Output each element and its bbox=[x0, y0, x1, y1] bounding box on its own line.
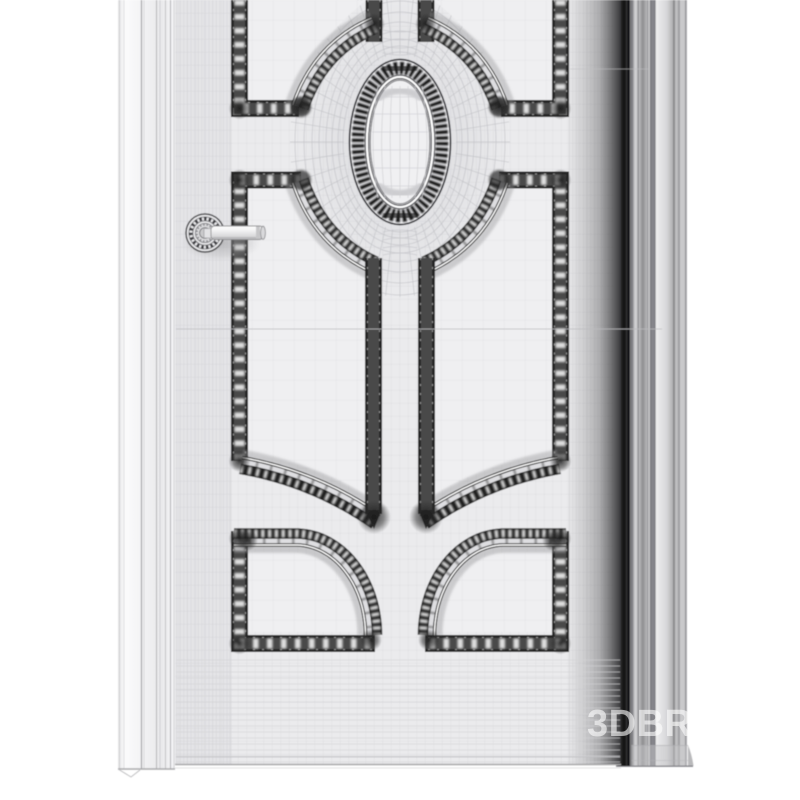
svg-text:3DBRE: 3DBRE bbox=[587, 703, 718, 745]
